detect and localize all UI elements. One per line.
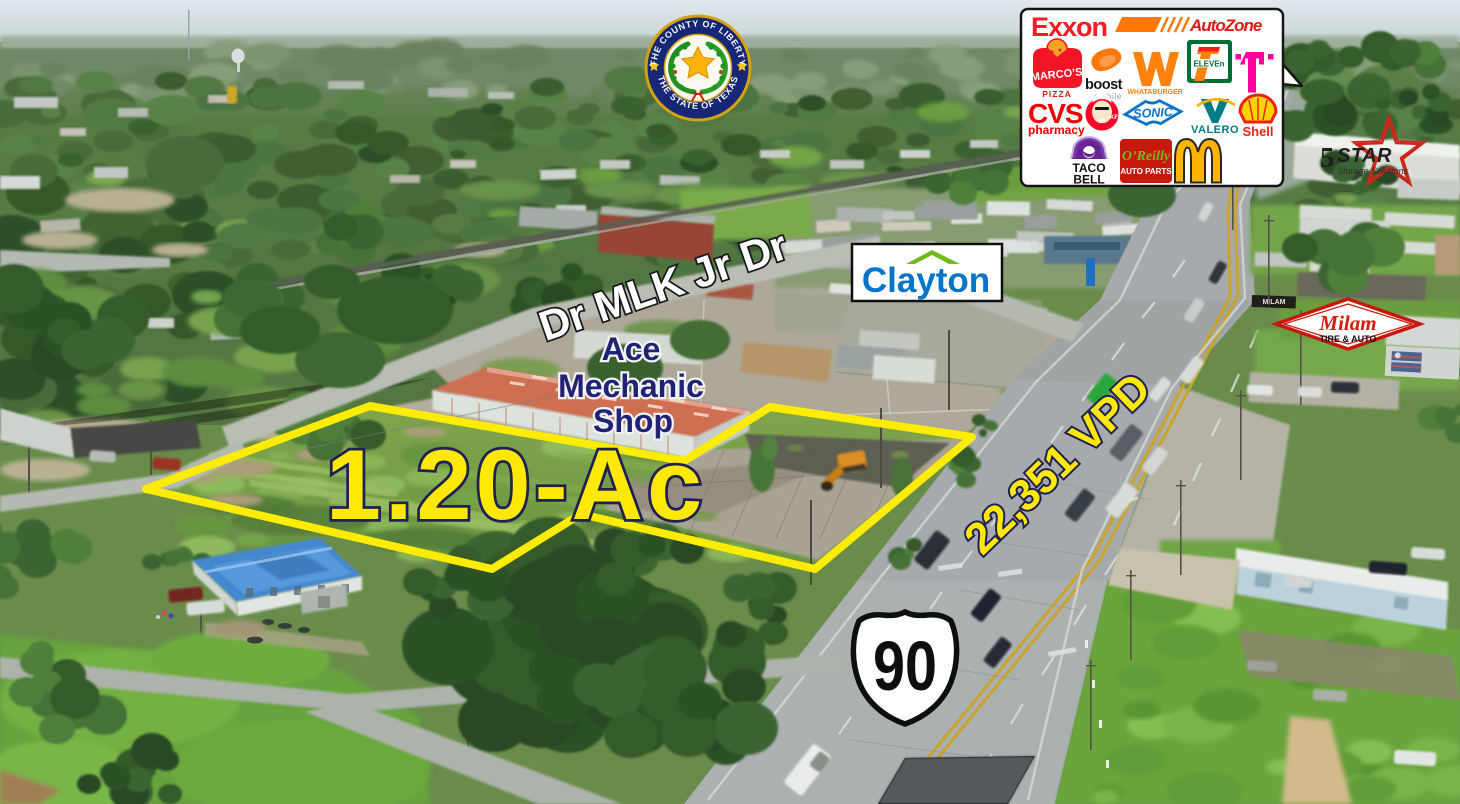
svg-text:VALERO: VALERO (1191, 124, 1239, 136)
svg-text:Milam: Milam (1318, 311, 1376, 335)
svg-text:STAR: STAR (1337, 145, 1392, 167)
svg-text:WHATABURGER: WHATABURGER (1127, 89, 1182, 96)
svg-text:Mechanic: Mechanic (558, 368, 704, 404)
svg-text:pharmacy: pharmacy (1028, 123, 1085, 137)
svg-text:AUTO PARTS: AUTO PARTS (1120, 167, 1172, 176)
svg-text:Clayton: Clayton (862, 261, 990, 300)
svg-text:Shop: Shop (593, 403, 673, 439)
svg-text:Storage Solutions: Storage Solutions (1337, 166, 1409, 176)
svg-text:MILAM: MILAM (1263, 299, 1286, 306)
svg-text:Exxon: Exxon (1031, 12, 1107, 42)
svg-text:AutoZone: AutoZone (1189, 16, 1262, 35)
svg-text:BELL: BELL (1073, 173, 1104, 187)
svg-text:Shell: Shell (1242, 124, 1273, 139)
svg-text:SONIC: SONIC (1133, 105, 1174, 121)
svg-text:1.20-Ac: 1.20-Ac (326, 429, 706, 540)
svg-text:90: 90 (873, 627, 937, 705)
svg-text:O’Reilly: O’Reilly (1122, 149, 1171, 164)
svg-text:TIRE & AUTO: TIRE & AUTO (1319, 334, 1376, 344)
svg-text:KFC: KFC (1110, 115, 1123, 121)
svg-text:Ace: Ace (602, 331, 661, 367)
svg-text:5: 5 (1320, 142, 1335, 174)
svg-text:ELEVEn: ELEVEn (1193, 60, 1224, 69)
